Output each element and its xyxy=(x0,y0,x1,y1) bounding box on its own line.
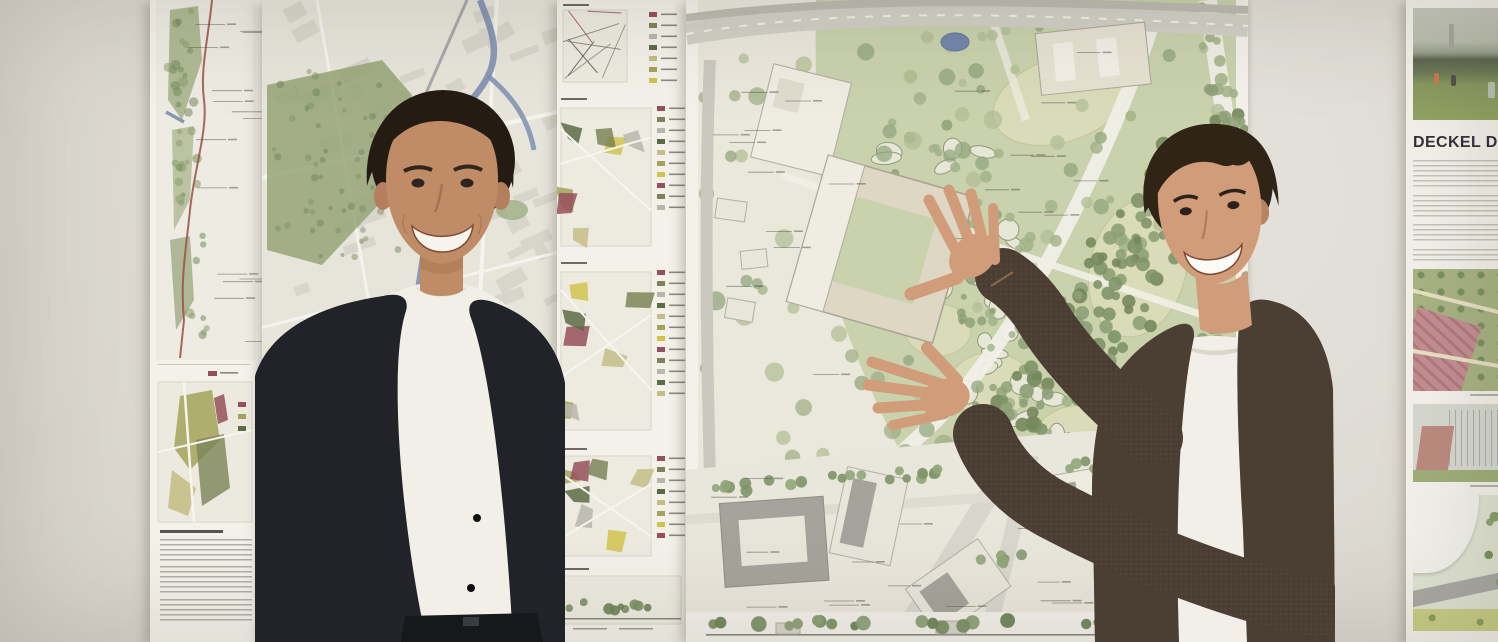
white-building xyxy=(1413,495,1479,573)
eye xyxy=(412,179,425,188)
left-presenter-body xyxy=(255,282,565,642)
left-hand-lower xyxy=(868,348,974,425)
text-paragraph xyxy=(1413,249,1498,261)
lawn-strip xyxy=(1413,609,1498,631)
render-park-lawn-people xyxy=(1413,8,1498,120)
church-spire xyxy=(1449,24,1454,50)
text-paragraph xyxy=(160,539,252,561)
text-heading-line xyxy=(160,530,223,533)
poster-corridor-map-strip xyxy=(150,0,262,642)
poster-body-text xyxy=(1413,160,1498,261)
render-curved-building xyxy=(1413,495,1498,631)
light-poles xyxy=(1449,410,1498,466)
figure xyxy=(1488,82,1495,98)
pond xyxy=(941,33,969,51)
text-paragraph xyxy=(160,566,252,594)
text-paragraph xyxy=(1413,160,1498,190)
pavilion xyxy=(1416,426,1454,470)
caption-line xyxy=(1470,394,1498,396)
left-presenter xyxy=(255,68,565,642)
text-paragraph xyxy=(160,599,252,623)
analysis-panel xyxy=(563,568,681,630)
photo-scene: DECKEL DRA xyxy=(0,0,1498,642)
ground-strip xyxy=(1413,470,1498,482)
figure xyxy=(1451,75,1456,86)
eye xyxy=(461,179,474,188)
tree-strip xyxy=(1480,495,1498,604)
analysis-diagrams-art xyxy=(557,0,686,642)
left-presenter-head xyxy=(367,90,515,296)
right-presenter xyxy=(845,108,1335,642)
belt-buckle xyxy=(463,617,479,626)
jacket-button xyxy=(467,584,475,592)
caption-line xyxy=(1470,485,1498,487)
poster-title: DECKEL DRA xyxy=(1413,134,1498,152)
render-pavilion-lightpoles xyxy=(1413,404,1498,482)
poster-deckel: DECKEL DRA xyxy=(1406,0,1498,642)
corridor-framework-map xyxy=(158,382,252,522)
poster-analysis-strip xyxy=(557,0,686,642)
text-paragraph xyxy=(1413,195,1498,219)
figure xyxy=(1434,73,1439,84)
terrace-steps xyxy=(1413,307,1482,391)
render-park-terraces xyxy=(1413,269,1498,391)
jacket-button xyxy=(473,514,481,522)
corridor-text-block xyxy=(160,530,252,628)
text-paragraph xyxy=(1413,224,1498,244)
